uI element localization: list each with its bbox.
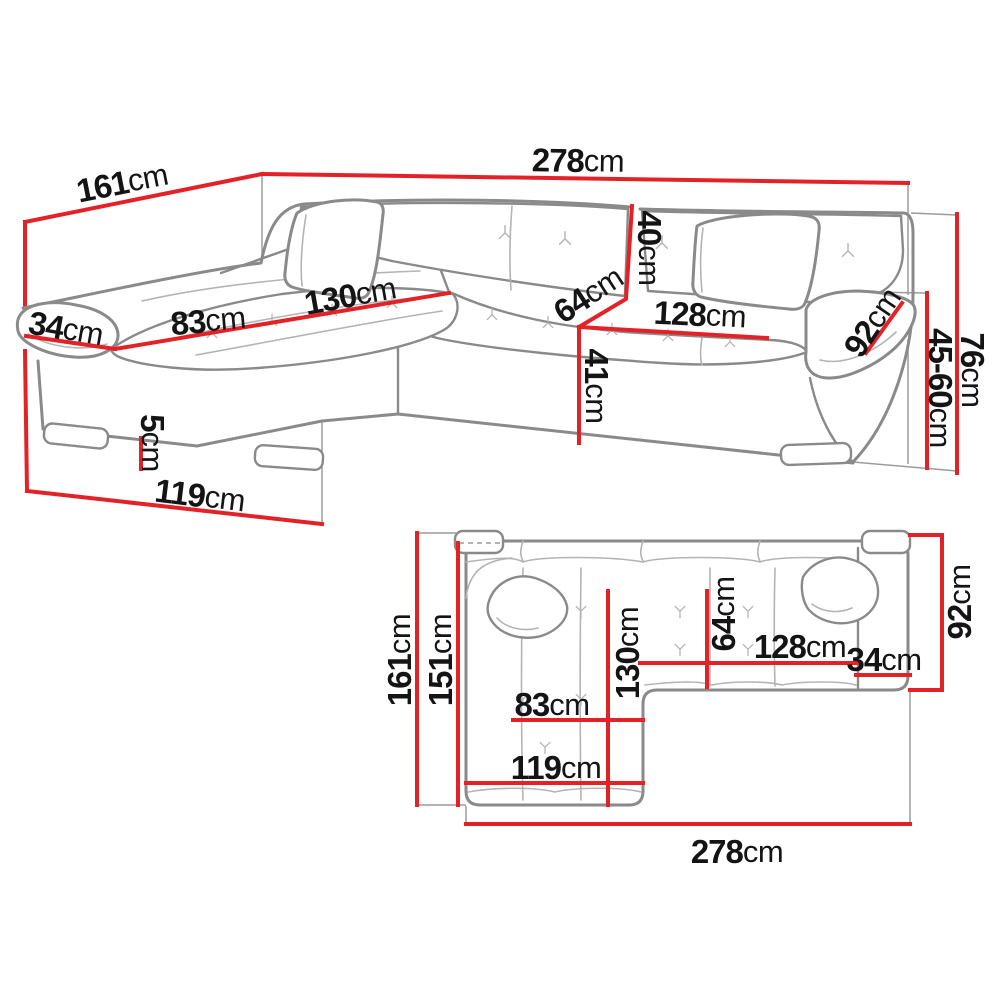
dim-label-seat-front-height: 41cm (579, 348, 616, 423)
dim-unit: cm (203, 478, 247, 518)
dim-unit: cm (204, 299, 247, 337)
dim-value: 151 (422, 653, 459, 706)
sofa-dimension-diagram: 161cm 278cm 34cm 83cm 130cm 40cm 64cm 12… (0, 0, 1000, 1000)
dim-label-plan-seat-depth: 64cm (705, 576, 742, 651)
dim-unit: cm (124, 156, 170, 198)
dim-label-total-height: 76cm (955, 332, 992, 407)
dim-label-plan-chaise-width: 119cm (511, 749, 602, 786)
dim-value: 278 (691, 833, 744, 870)
dim-label-plan-chaise-seat: 83cm (514, 686, 589, 723)
dim-value: 45-60 (923, 328, 960, 407)
construction-ground-line (853, 462, 957, 471)
sofa-foot-right (781, 443, 852, 465)
dim-unit: cm (956, 367, 991, 407)
pillow-right-plan (802, 558, 878, 624)
dim-label-plan-width-total: 278cm (691, 833, 783, 870)
dim-value: 128 (754, 628, 807, 665)
plan-view: 161cm 151cm 130cm 64cm 128cm 34cm 92cm 8… (381, 531, 978, 870)
perspective-view: 161cm 278cm 34cm 83cm 130cm 40cm 64cm 12… (17, 141, 991, 524)
dim-unit: cm (705, 297, 747, 334)
construction-tick-total-height (911, 213, 957, 215)
sofa-foot-left (43, 423, 109, 450)
dim-label-height-range: 45-60cm (923, 328, 960, 448)
dim-value: 119 (511, 749, 562, 786)
dim-unit: cm (580, 383, 615, 423)
dim-value: 83 (169, 302, 207, 342)
dim-unit: cm (584, 143, 625, 179)
dim-value: 161 (381, 653, 418, 706)
dim-unit: cm (743, 834, 783, 869)
dim-value: 130 (609, 647, 646, 699)
diagram-stage: 161cm 278cm 34cm 83cm 130cm 40cm 64cm 12… (0, 0, 1000, 1000)
dim-unit: cm (633, 245, 668, 285)
dim-value: 92 (941, 604, 978, 639)
dim-unit: cm (706, 576, 741, 616)
sofa-plan-tab-right (862, 531, 910, 553)
dim-unit: cm (60, 310, 106, 351)
dim-label-width-total: 278cm (531, 141, 624, 180)
dim-line-left-vertical (25, 222, 27, 491)
dim-value: 128 (653, 293, 708, 333)
pillow-right (693, 214, 819, 309)
dim-label-backrest-height: 40cm (632, 210, 669, 285)
dim-unit: cm (353, 270, 399, 311)
dim-value: 76 (955, 332, 992, 367)
dim-value: 83 (514, 686, 549, 723)
dim-unit: cm (806, 629, 846, 664)
dim-unit: cm (561, 750, 601, 785)
dim-label-plan-chaise-length: 130cm (609, 607, 646, 699)
dim-value: 34 (846, 641, 882, 678)
dim-unit: cm (881, 642, 921, 677)
dim-label-plan-depth-inner: 151cm (422, 614, 459, 706)
dim-value: 119 (153, 471, 208, 514)
dim-value: 41 (579, 348, 616, 383)
sofa-foot-middle (254, 445, 323, 471)
dim-unit: cm (423, 614, 458, 654)
dim-label-plan-armrest-width: 34cm (846, 641, 921, 678)
dim-value: 278 (531, 141, 584, 179)
dim-unit: cm (942, 564, 977, 604)
dim-label-seat-width: 128cm (653, 293, 747, 335)
dim-label-plan-seat-width: 128cm (754, 628, 846, 665)
dim-label-leg-height: 5cm (135, 414, 172, 472)
dim-unit: cm (610, 607, 645, 647)
dim-unit: cm (136, 432, 171, 472)
dim-value: 40 (632, 210, 669, 245)
dim-label-chaise-width: 119cm (153, 471, 247, 519)
dim-value: 64 (705, 615, 742, 651)
dim-unit: cm (382, 614, 417, 654)
sofa-plan-tab-left (455, 531, 503, 553)
dim-label-plan-armrest-length: 92cm (941, 564, 978, 639)
dim-value: 5 (135, 414, 172, 432)
dim-label-plan-depth-total: 161cm (381, 614, 418, 706)
dim-unit: cm (549, 687, 589, 722)
dim-unit: cm (924, 408, 959, 448)
